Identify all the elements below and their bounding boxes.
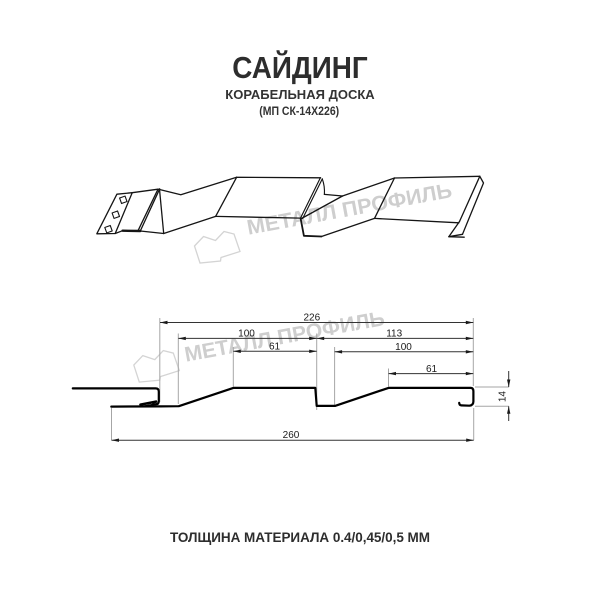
svg-text:113: 113 [386, 329, 402, 340]
svg-text:260: 260 [283, 430, 300, 441]
svg-text:14: 14 [498, 391, 509, 403]
svg-text:(МП СК-14Х226): (МП СК-14Х226) [259, 106, 339, 118]
svg-text:61: 61 [426, 364, 438, 375]
svg-text:КОРАБЕЛЬНАЯ ДОСКА: КОРАБЕЛЬНАЯ ДОСКА [225, 87, 375, 102]
svg-text:100: 100 [238, 329, 255, 340]
svg-text:226: 226 [303, 313, 320, 324]
svg-text:100: 100 [395, 342, 412, 353]
svg-text:САЙДИНГ: САЙДИНГ [232, 49, 367, 85]
svg-text:61: 61 [269, 342, 281, 353]
svg-text:ТОЛЩИНА МАТЕРИАЛА 0.4/0,45/0,5: ТОЛЩИНА МАТЕРИАЛА 0.4/0,45/0,5 ММ [170, 530, 430, 545]
